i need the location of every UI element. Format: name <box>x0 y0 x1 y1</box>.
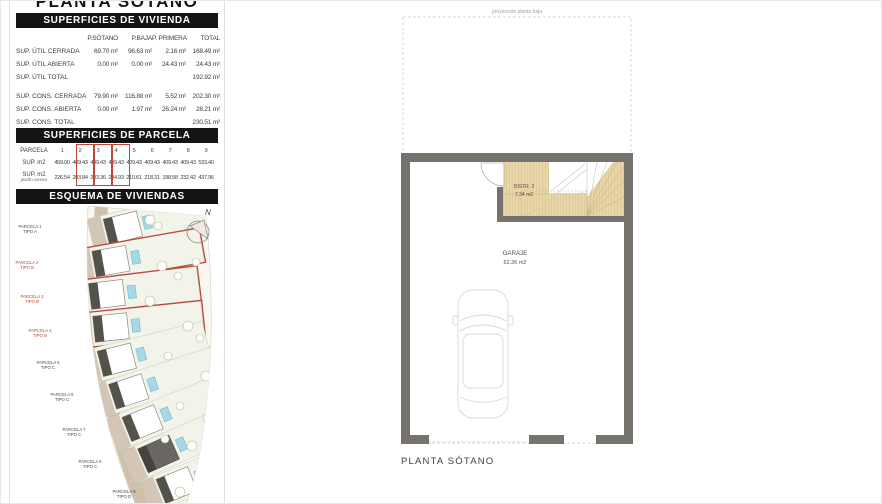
table-cell: 192.92 m² <box>186 71 220 84</box>
sheet-title: PLANTA SÓTANO <box>10 1 224 12</box>
vivienda-table: P.SÓTANO P.BAJA P. PRIMERA TOTAL SUP. ÚT… <box>16 32 220 129</box>
table-cell: 218.31 <box>143 175 161 181</box>
table-row: SUP. ÚTIL TOTAL 192.92 m² <box>16 71 220 84</box>
table-cell: 69.70 m² <box>84 45 118 58</box>
north-label: N <box>205 208 211 217</box>
table-cell: 9 <box>197 148 215 154</box>
section-header-viviendas: SUPERFICIES DE VIVIENDA <box>16 13 218 28</box>
table-cell: 5.52 m² <box>152 90 186 103</box>
row-label: SUP. CONS. CERRADA <box>16 90 84 103</box>
table-cell: 198.58 <box>161 175 179 181</box>
table-cell: 409.43 <box>179 160 197 166</box>
table-cell: 459.00 <box>53 160 71 166</box>
table-cell <box>84 71 118 84</box>
parcel-tipo: TIPO C <box>67 432 81 437</box>
projection-label: proyección planta baja <box>492 9 542 15</box>
pool <box>131 318 140 332</box>
door-swing-icon <box>481 163 504 186</box>
plan-caption: PLANTA SÓTANO <box>401 456 494 467</box>
table-cell: 226.54 <box>53 175 71 181</box>
table-cell: 96.63 m² <box>118 45 152 58</box>
room-name: DISTR. 2 <box>514 184 535 190</box>
row-label: PARCELA <box>15 148 53 155</box>
table-cell: 2.16 m² <box>152 45 186 58</box>
table-cell: 6 <box>143 148 161 154</box>
table-cell: 0.00 m² <box>84 103 118 116</box>
col-header: TOTAL <box>186 32 220 45</box>
row-label: SUP. CONS. ABIERTA <box>16 103 84 116</box>
row-label: SUP. ÚTIL TOTAL <box>16 71 84 84</box>
row-label: SUP. m2 <box>15 160 53 167</box>
parcel-tipo: TIPO B <box>25 299 39 304</box>
table-cell: 533.40 <box>197 160 215 166</box>
table-row: SUP. ÚTIL CERRADA 69.70 m² 96.63 m² 2.16… <box>16 45 220 58</box>
table-cell: 7 <box>161 148 179 154</box>
section-header-esquema: ESQUEMA DE VIVIENDAS <box>16 189 218 204</box>
drawing-sheet: PLANTA SÓTANO SUPERFICIES DE VIVIENDA P.… <box>0 0 882 504</box>
table-cell: 79.90 m² <box>84 90 118 103</box>
parcel-tipo: TIPO C <box>55 397 69 402</box>
table-header-row: P.SÓTANO P.BAJA P. PRIMERA TOTAL <box>16 32 220 45</box>
parcela-table: PARCELA 1 2 3 4 5 6 7 8 9 SUP. m2 459.00… <box>15 145 221 186</box>
parcel-tipo: TIPO D <box>117 494 131 499</box>
table-cell: 0.00 m² <box>118 58 152 71</box>
table-cell: 437.96 <box>197 175 215 181</box>
highlight-box-parcela-2 <box>76 144 94 186</box>
row-label: SUP. ÚTIL ABIERTA <box>16 58 84 71</box>
left-panel: PLANTA SÓTANO SUPERFICIES DE VIVIENDA P.… <box>9 1 225 504</box>
room-name: GARAJE <box>503 250 528 257</box>
highlight-box-parcela-4 <box>112 144 130 186</box>
table-cell: 24.43 m² <box>152 58 186 71</box>
table-row: SUP. CONS. ABIERTA 0.00 m² 1.97 m² 26.24… <box>16 103 220 116</box>
col-header: P. PRIMERA <box>152 32 186 45</box>
table-cell: 0.00 m² <box>84 58 118 71</box>
table-cell: 168.49 m² <box>186 45 220 58</box>
parcel-tipo: TIPO B <box>33 333 47 338</box>
table-cell: 1.97 m² <box>118 103 152 116</box>
table-cell <box>152 71 186 84</box>
parcel-tipo: TIPO C <box>41 365 55 370</box>
pool <box>127 285 137 299</box>
table-row: SUP. ÚTIL ABIERTA 0.00 m² 0.00 m² 24.43 … <box>16 58 220 71</box>
parcel-tipo: TIPO B <box>20 265 34 270</box>
section-header-parcelas: SUPERFICIES DE PARCELA <box>16 128 218 143</box>
car-outline <box>453 290 513 418</box>
table-cell: 409.43 <box>143 160 161 166</box>
site-plan: N PARCELA 1 TIPO A PARCELA 2 TIPO B PARC… <box>10 206 224 504</box>
table-cell: 232.42 <box>179 175 197 181</box>
col-header: P.BAJA <box>118 32 152 45</box>
table-cell: 202.30 m² <box>186 90 220 103</box>
table-row: SUP. CONS. CERRADA 79.90 m² 116.88 m² 5.… <box>16 90 220 103</box>
table-cell <box>118 71 152 84</box>
parcel-tipo: TIPO A <box>23 229 37 234</box>
basement-plan: proyección planta baja <box>381 1 882 504</box>
pool <box>194 469 206 484</box>
table-cell: 116.88 m² <box>118 90 152 103</box>
col-header: P.SÓTANO <box>84 32 118 45</box>
room-area: 7.34 m2 <box>515 192 533 198</box>
table-cell: 409.43 <box>161 160 179 166</box>
table-cell: 28.21 m² <box>186 103 220 116</box>
table-cell: 1 <box>53 148 71 154</box>
parcel-tipo: TIPO C <box>83 464 97 469</box>
table-cell: 24.43 m² <box>186 58 220 71</box>
row-label: SUP. m2jardín anexo <box>15 172 53 184</box>
projection-outline <box>403 17 631 443</box>
table-cell: 26.24 m² <box>152 103 186 116</box>
table-cell: 8 <box>179 148 197 154</box>
room-area: 62.36 m2 <box>504 260 527 266</box>
highlight-box-parcela-3 <box>94 144 112 186</box>
row-label: SUP. ÚTIL CERRADA <box>16 45 84 58</box>
